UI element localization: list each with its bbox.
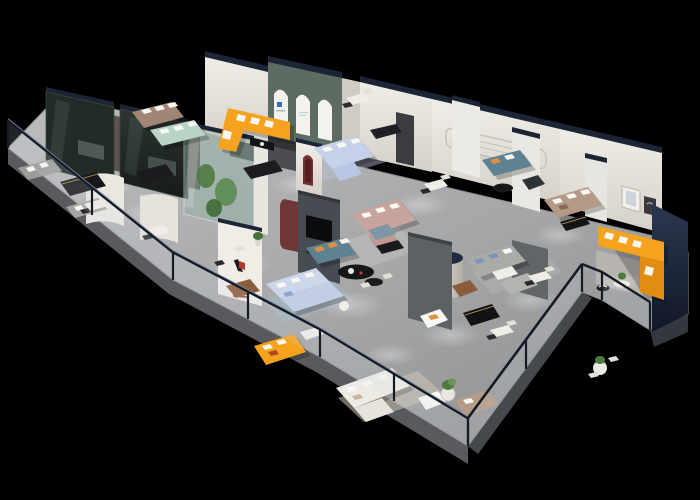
arch-panel <box>318 100 332 141</box>
oval-coffee-table <box>338 265 374 280</box>
plant <box>595 356 605 364</box>
red-niche-wall <box>296 138 322 196</box>
plant <box>618 273 626 280</box>
plants <box>197 164 215 188</box>
doorway-opening <box>396 112 414 166</box>
round-table-black <box>493 184 513 193</box>
tv-feature-wall <box>298 190 340 284</box>
column <box>452 95 480 178</box>
floorplan-svg <box>0 0 700 500</box>
maroon-panel <box>280 199 298 252</box>
arch-caption-text <box>299 112 308 113</box>
side-table <box>339 301 349 311</box>
brand-logo-text <box>276 110 285 111</box>
brand-logo-mark <box>277 102 282 107</box>
showroom-render <box>0 0 700 500</box>
terrarium-pillar <box>254 141 268 235</box>
